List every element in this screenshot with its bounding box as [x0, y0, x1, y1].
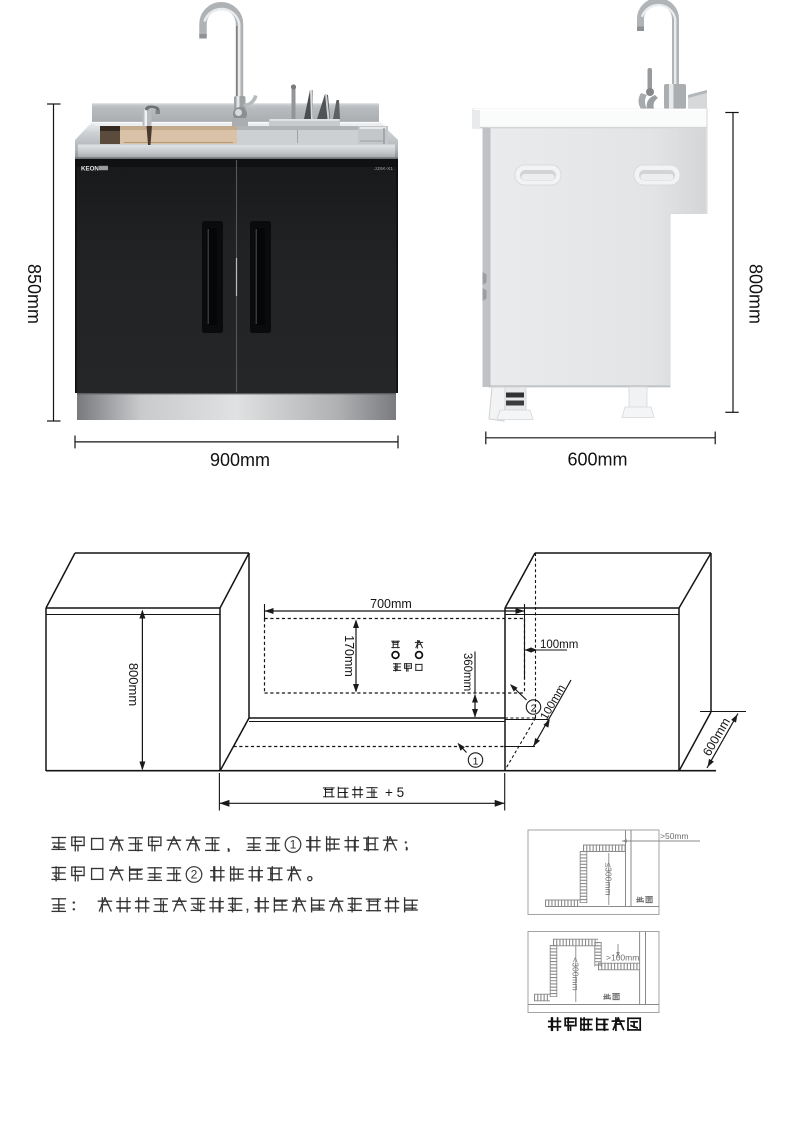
svg-text:1: 1	[473, 755, 479, 767]
svg-text:900mm: 900mm	[210, 450, 270, 470]
svg-text:360mm: 360mm	[461, 653, 473, 691]
svg-text:<300mm: <300mm	[571, 957, 581, 990]
svg-text:170mm: 170mm	[342, 635, 356, 677]
svg-text:>50mm: >50mm	[660, 831, 689, 841]
svg-text:100mm: 100mm	[540, 639, 578, 651]
svg-text:JJSK-X1: JJSK-X1	[374, 166, 393, 172]
svg-text:850mm: 850mm	[24, 264, 44, 324]
svg-text:800mm: 800mm	[746, 264, 766, 324]
svg-text:100mm: 100mm	[539, 683, 569, 722]
svg-text:2: 2	[191, 868, 198, 882]
svg-text:2: 2	[531, 702, 537, 714]
svg-text:700mm: 700mm	[370, 597, 412, 611]
svg-text:1: 1	[290, 838, 297, 852]
svg-text:KEON: KEON	[81, 166, 99, 173]
svg-text:≤300mm: ≤300mm	[604, 862, 614, 895]
svg-text:600mm: 600mm	[567, 450, 627, 470]
svg-text:800mm: 800mm	[126, 663, 141, 706]
svg-text:,: ,	[245, 894, 250, 914]
svg-text:>100mm: >100mm	[606, 953, 639, 963]
svg-text:+ 5: + 5	[385, 785, 404, 800]
